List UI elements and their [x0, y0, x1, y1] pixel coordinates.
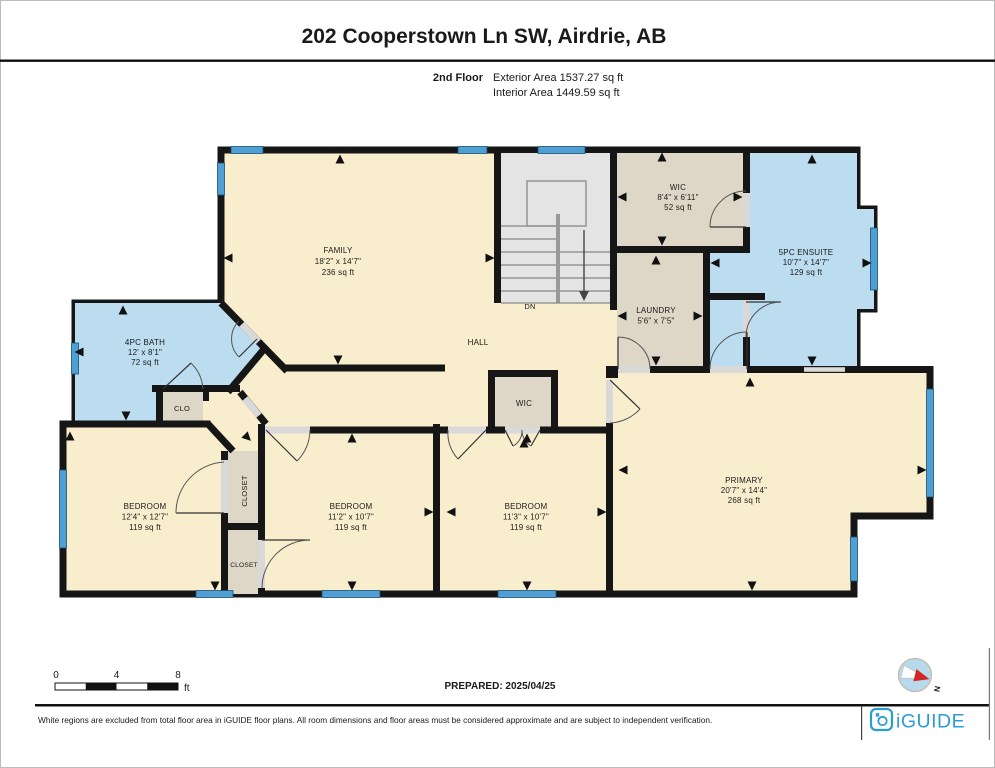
svg-text:10'7" x 14'7": 10'7" x 14'7"	[783, 258, 829, 267]
svg-text:PRIMARY: PRIMARY	[725, 476, 763, 485]
scale-bar: 0 4 8 ft	[53, 670, 190, 694]
svg-text:8: 8	[175, 670, 181, 681]
svg-text:BEDROOM: BEDROOM	[330, 502, 373, 511]
svg-text:72 sq ft: 72 sq ft	[131, 358, 159, 367]
svg-text:20'7" x 14'4": 20'7" x 14'4"	[721, 486, 767, 495]
header: 202 Cooperstown Ln SW, Airdrie, AB 2nd F…	[0, 25, 995, 99]
svg-text:ft: ft	[184, 683, 190, 694]
window	[927, 389, 934, 497]
iguide-logo: iGUIDE	[871, 709, 965, 733]
svg-text:BEDROOM: BEDROOM	[124, 502, 167, 511]
svg-text:FAMILY: FAMILY	[323, 246, 353, 255]
window	[458, 147, 487, 154]
svg-text:268 sq ft: 268 sq ft	[728, 496, 761, 505]
floor-label: 2nd Floor	[433, 72, 484, 84]
closet-lower-label: CLOSET	[230, 562, 258, 569]
footer-disclaimer: White regions are excluded from total fl…	[38, 715, 712, 725]
stairs	[501, 153, 610, 303]
svg-text:LAUNDRY: LAUNDRY	[636, 306, 676, 315]
svg-text:236 sq ft: 236 sq ft	[322, 268, 355, 277]
svg-text:12'4" x 12'7": 12'4" x 12'7"	[122, 513, 168, 522]
svg-text:WIC: WIC	[670, 183, 686, 192]
svg-text:18'2" x 14'7": 18'2" x 14'7"	[315, 257, 361, 266]
svg-text:5'6" x 7'5": 5'6" x 7'5"	[637, 317, 674, 326]
wic-small-label: WIC	[516, 399, 532, 408]
window	[60, 470, 67, 548]
window	[851, 537, 858, 581]
hall-label: HALL	[468, 338, 489, 347]
room-label-laundry: LAUNDRY 5'6" x 7'5"	[636, 306, 676, 326]
window	[218, 163, 225, 195]
stairs-stringer	[556, 214, 560, 303]
svg-text:119 sq ft: 119 sq ft	[335, 523, 367, 532]
svg-text:11'2" x 10'7": 11'2" x 10'7"	[328, 513, 374, 522]
iguide-logo-icon	[871, 709, 892, 730]
dn-label: DN	[524, 302, 535, 311]
footer-vline-left	[861, 706, 862, 740]
svg-text:119 sq ft: 119 sq ft	[129, 523, 161, 532]
window	[72, 343, 79, 374]
svg-text:119 sq ft: 119 sq ft	[510, 523, 542, 532]
compass-north-label: N	[932, 685, 942, 692]
window	[871, 228, 878, 290]
closet-upper-label: CLOSET	[240, 475, 249, 506]
svg-text:BEDROOM: BEDROOM	[505, 502, 548, 511]
interior-area: Interior Area 1449.59 sq ft	[493, 87, 620, 99]
iguide-logo-text: iGUIDE	[896, 711, 965, 733]
window	[538, 147, 585, 154]
svg-text:52 sq ft: 52 sq ft	[664, 203, 692, 212]
footer: 0 4 8 ft PREPARED: 2025/04/25 N White re…	[35, 648, 990, 740]
svg-text:11'3" x 10'7": 11'3" x 10'7"	[503, 513, 549, 522]
floor-plan-canvas: 202 Cooperstown Ln SW, Airdrie, AB 2nd F…	[0, 0, 995, 768]
clo-label: CLO	[174, 404, 190, 413]
header-divider	[0, 60, 995, 62]
svg-text:4PC BATH: 4PC BATH	[125, 338, 165, 347]
footer-divider	[35, 704, 990, 707]
prepared-date: PREPARED: 2025/04/25	[445, 681, 556, 692]
window	[231, 147, 263, 154]
footer-vline-right	[989, 648, 990, 740]
window	[498, 591, 556, 598]
compass: N	[899, 659, 942, 693]
exterior-area: Exterior Area 1537.27 sq ft	[493, 72, 623, 84]
svg-text:0: 0	[53, 670, 59, 681]
svg-text:12' x 8'1": 12' x 8'1"	[128, 348, 162, 357]
svg-text:8'4" x 6'11": 8'4" x 6'11"	[657, 193, 698, 202]
page-title: 202 Cooperstown Ln SW, Airdrie, AB	[302, 25, 667, 48]
window	[322, 591, 380, 598]
svg-text:5PC ENSUITE: 5PC ENSUITE	[779, 248, 834, 257]
svg-text:129 sq ft: 129 sq ft	[790, 268, 823, 277]
stairs-floor	[501, 153, 610, 303]
svg-text:4: 4	[114, 670, 120, 681]
window	[196, 591, 233, 598]
